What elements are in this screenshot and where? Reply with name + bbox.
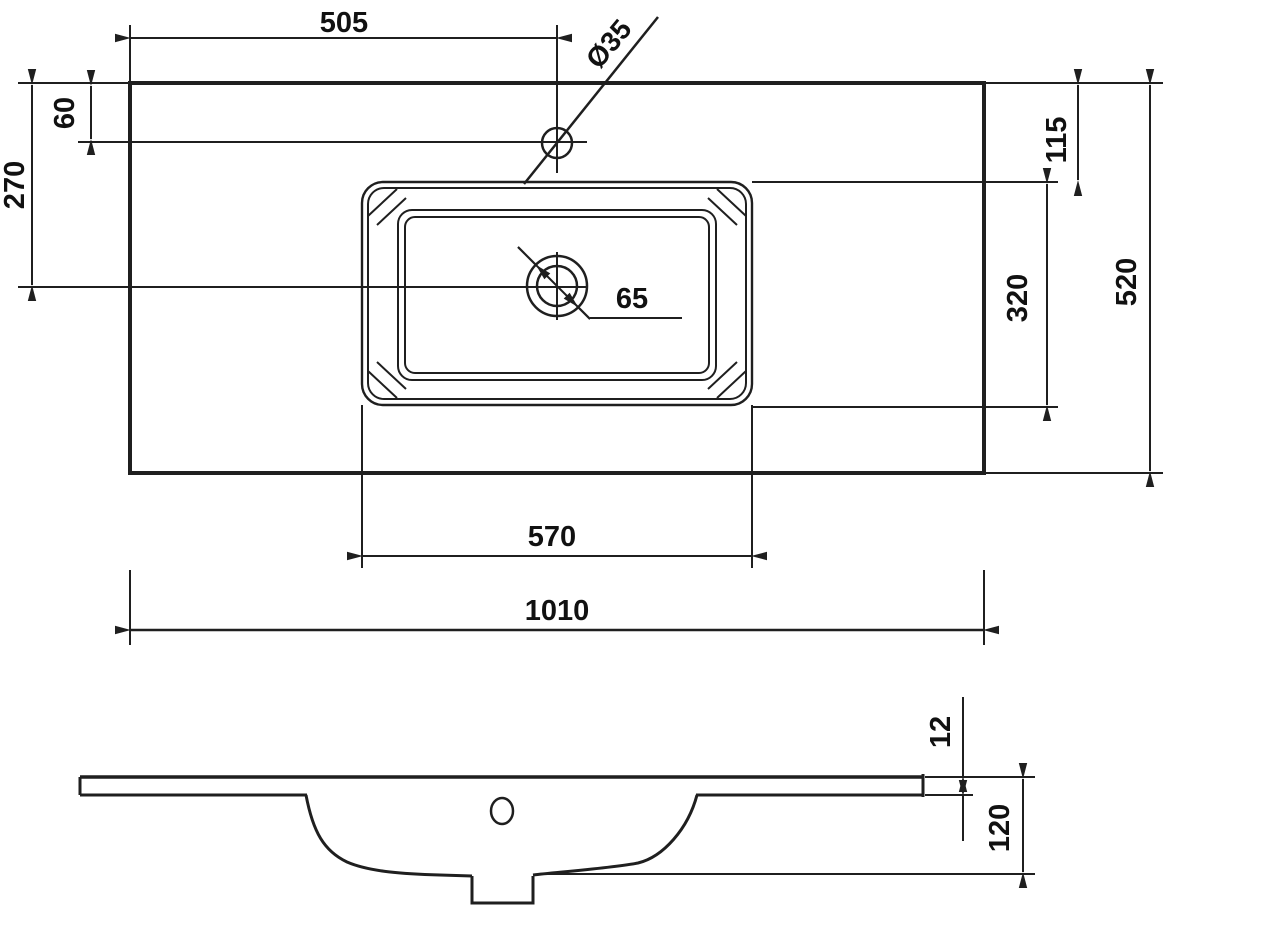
dim-label-total-height: 120 [984, 804, 1016, 852]
dimension-labels: 505 Ø35 60 270 65 115 320 520 570 1010 1… [0, 7, 1143, 852]
dimension-drain-65 [518, 247, 682, 319]
washbasin-technical-drawing: 505 Ø35 60 270 65 115 320 520 570 1010 1… [0, 0, 1264, 926]
dim-label-faucet-offset-x: 505 [320, 7, 368, 39]
dim-label-right-top-offset: 115 [1041, 117, 1073, 164]
bowl-profile [306, 795, 697, 903]
top-view [18, 17, 1163, 645]
drain-outlet [472, 876, 533, 903]
right-extension-lines [752, 83, 1163, 473]
dim-label-faucet-offset-y: 60 [49, 97, 81, 129]
dim-label-basin-depth: 320 [1002, 274, 1034, 322]
side-extension-lines [545, 777, 1035, 874]
dim-label-drain-diameter: 65 [616, 283, 648, 315]
faucet-hole [542, 25, 572, 173]
side-view [80, 697, 1035, 903]
dim-label-basin-width: 570 [528, 521, 576, 553]
dim-label-slab-thickness: 12 [925, 716, 957, 748]
left-extension-lines [18, 25, 588, 287]
technical-drawing-page: 505 Ø35 60 270 65 115 320 520 570 1010 1… [0, 0, 1264, 926]
dim-label-total-width: 1010 [525, 595, 590, 627]
dim-label-faucet-diameter: Ø35 [580, 14, 638, 74]
slab-profile [80, 774, 923, 797]
dim-label-total-depth: 520 [1111, 258, 1143, 306]
dim-label-drain-offset-y: 270 [0, 161, 31, 209]
overflow-hole [491, 798, 513, 824]
